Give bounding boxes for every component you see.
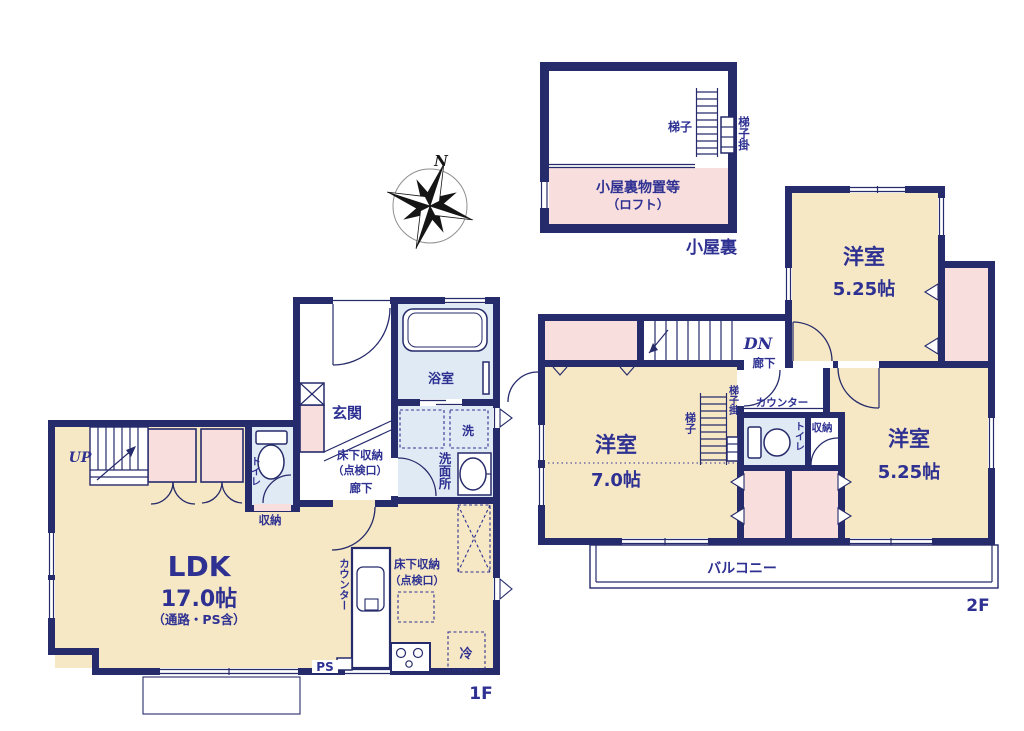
balcony-label: バルコニー [707,561,777,577]
room-left-name: 洋室 [595,433,637,457]
closet-label-2f: 収納 [812,421,833,434]
ladder-label-2f: 梯子 [684,411,697,435]
entrance-label: 玄関 [332,404,362,422]
compass-north-label: N [433,152,449,170]
attic-storage-sub-label: （ロフト） [607,197,670,212]
counter-label-2f: カウンター [756,397,809,409]
fridge-label: 冷 [459,646,472,662]
balcony [590,545,998,588]
counter-label-1f: カウンター [338,558,350,611]
ladder-hook-label-2f: 梯子掛 [727,384,739,416]
hallway-label-1f: 廊下 [350,481,373,495]
toilet-closet-strip [254,504,291,511]
compass-rose: N [373,149,486,262]
attic-ladder-hook-label: 梯子掛 [737,115,751,151]
kitchen-underfloor-label-1: 床下収納 [394,557,440,571]
hallway-label-2f: 廊下 [753,356,776,370]
toilet-label-2f: トイレ [793,421,805,451]
kitchen-underfloor-label-2: （点検口） [390,573,445,587]
terrace [143,677,300,714]
underfloor-storage-label-1: 床下収納 [337,448,383,462]
room-right-size: 5.25帖 [878,461,940,483]
attic-ladder-hook [721,117,734,153]
toilet-fixture-1f [256,431,287,479]
stairs-up-label: UP [69,450,92,466]
second-floor-plan: 洋室 5.25帖 洋室 7.0帖 洋室 5.25帖 DN 廊下 カウンター トイ… [508,186,998,616]
floorplan-image: 梯子 梯子掛 小屋裏物置等 （ロフト） 小屋裏 N [0,0,1024,731]
toilet-fixture-2f [748,427,790,458]
attic-floor-label: 小屋裏 [686,237,738,258]
stairs-up [90,427,148,485]
closet-label-1f: 収納 [259,513,282,527]
ldk-name: LDK [168,550,232,583]
ldk-size: 17.0帖 [161,587,237,612]
attic-ladder-label: 梯子 [668,119,692,134]
floor2-label: 2F [966,596,989,616]
room-top-size: 5.25帖 [833,278,895,300]
attic-storage-label: 小屋裏物置等 [596,179,680,196]
underfloor-storage-label-2: （点検口） [333,463,388,477]
attic-plan: 梯子 梯子掛 小屋裏物置等 （ロフト） 小屋裏 [540,62,751,258]
room-left-size: 7.0帖 [591,469,641,491]
attic-window [540,182,549,208]
room-top-name: 洋室 [843,245,885,269]
toilet-label-1f: トイレ [249,456,261,486]
floor1-label: 1F [469,684,492,704]
ldk-note: （通路・PS含） [152,612,245,627]
room-right-name: 洋室 [888,427,930,451]
first-floor-plan: UP 玄関 浴室 洗 洗面所 床下収納 （点検口） 廊下 トイレ 収納 LDK … [48,297,512,714]
ps-label: PS [316,660,333,674]
bath-label: 浴室 [428,371,454,387]
floorplan-page: 梯子 梯子掛 小屋裏物置等 （ロフト） 小屋裏 N [0,0,1024,731]
washer-label: 洗 [462,423,474,438]
stairs-down-label: DN [743,334,774,353]
washroom-label: 洗面所 [437,451,452,490]
